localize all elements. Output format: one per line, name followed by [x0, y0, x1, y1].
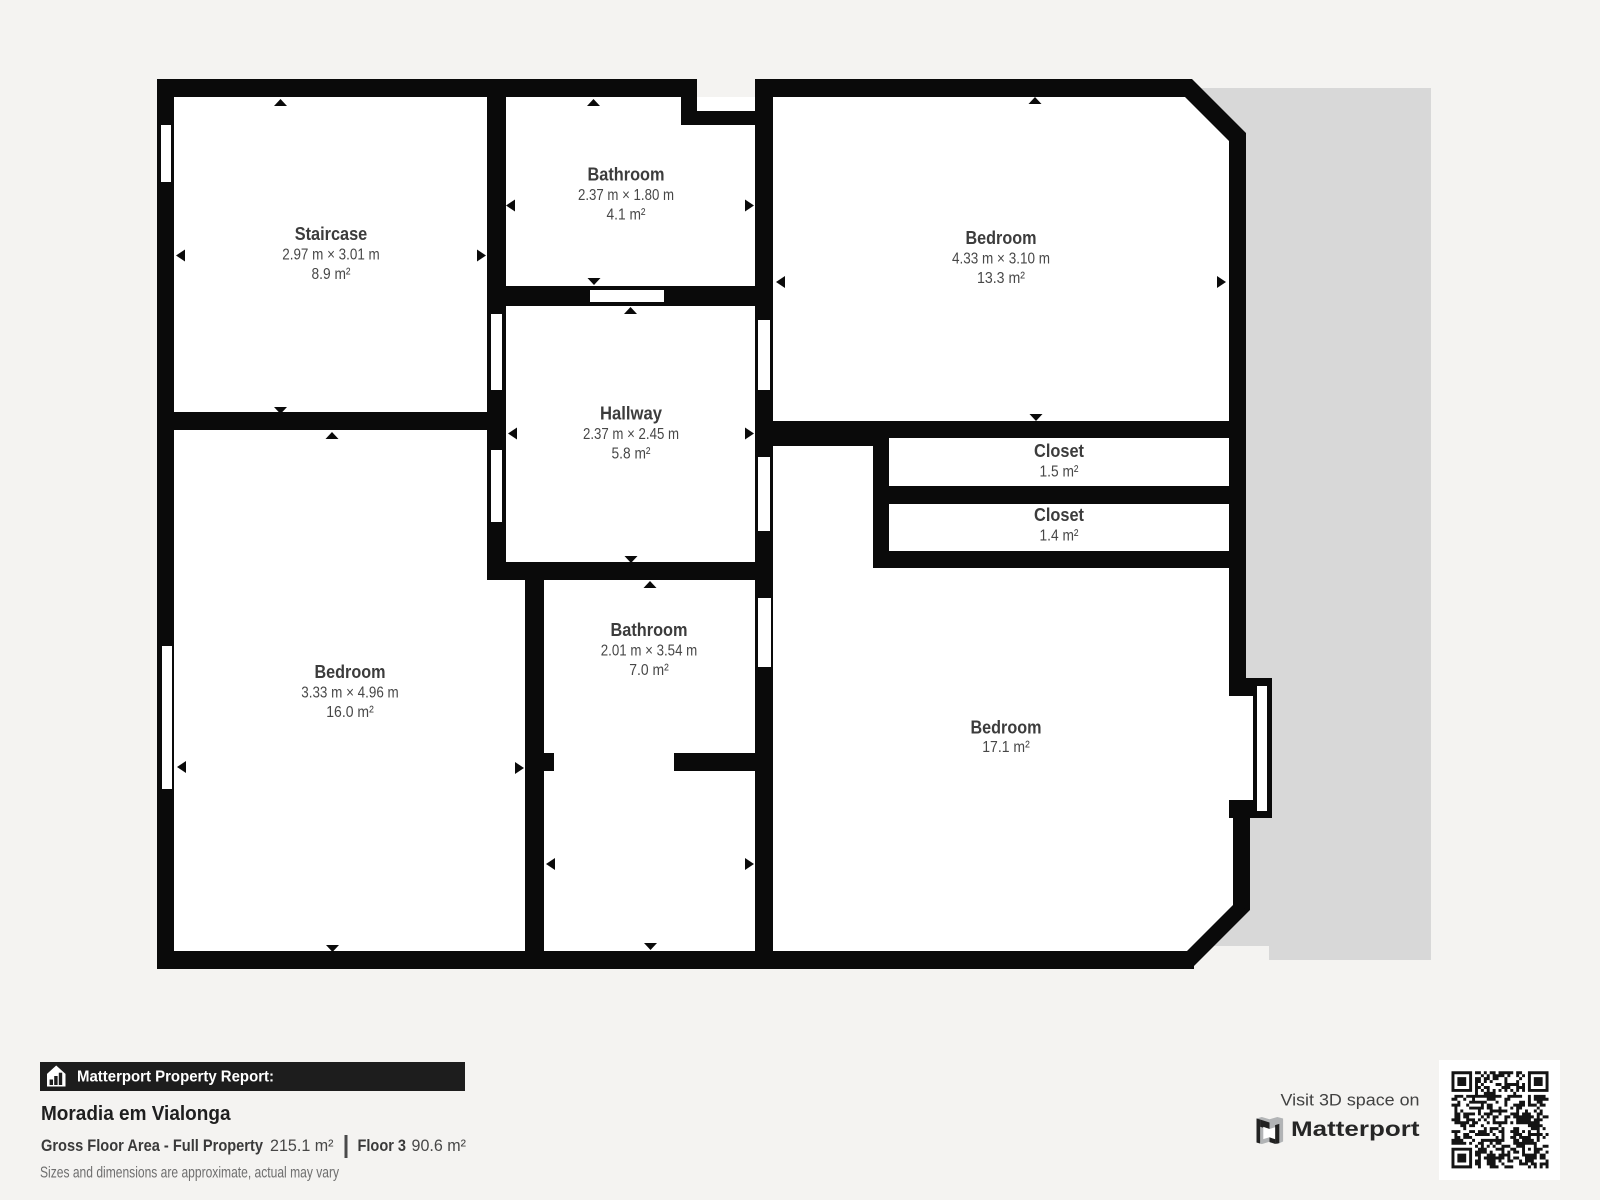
svg-text:Floor 3: Floor 3: [358, 1136, 407, 1155]
svg-text:Bathroom: Bathroom: [588, 165, 665, 185]
svg-text:2.97 m × 3.01 m: 2.97 m × 3.01 m: [282, 247, 380, 264]
svg-text:215.1 m²: 215.1 m²: [270, 1136, 334, 1155]
svg-text:Moradia em Vialonga: Moradia em Vialonga: [41, 1102, 231, 1125]
svg-text:2.37 m × 1.80 m: 2.37 m × 1.80 m: [578, 187, 674, 204]
svg-text:Hallway: Hallway: [600, 404, 662, 424]
svg-text:Bedroom: Bedroom: [971, 718, 1042, 738]
svg-text:2.01 m × 3.54 m: 2.01 m × 3.54 m: [601, 643, 698, 660]
svg-text:5.8 m²: 5.8 m²: [612, 446, 652, 463]
svg-text:13.3 m²: 13.3 m²: [977, 270, 1026, 287]
svg-text:2.37 m × 2.45 m: 2.37 m × 2.45 m: [583, 426, 679, 443]
svg-text:Bedroom: Bedroom: [966, 228, 1037, 248]
svg-text:17.1 m²: 17.1 m²: [982, 739, 1030, 756]
svg-text:Bathroom: Bathroom: [611, 620, 688, 640]
svg-text:Matterport: Matterport: [1291, 1117, 1420, 1141]
svg-text:4.33 m × 3.10 m: 4.33 m × 3.10 m: [952, 251, 1050, 268]
svg-text:16.0 m²: 16.0 m²: [326, 704, 374, 721]
svg-text:Gross Floor Area - Full Proper: Gross Floor Area - Full Property: [41, 1136, 263, 1155]
svg-text:3.33 m × 4.96 m: 3.33 m × 4.96 m: [301, 685, 399, 702]
svg-text:8.9 m²: 8.9 m²: [312, 266, 352, 283]
svg-text:Bedroom: Bedroom: [315, 662, 386, 682]
svg-text:Sizes and dimensions are appro: Sizes and dimensions are approximate, ac…: [40, 1165, 339, 1182]
svg-text:7.0 m²: 7.0 m²: [629, 662, 669, 679]
svg-text:1.5 m²: 1.5 m²: [1040, 464, 1080, 481]
svg-text:Closet: Closet: [1034, 441, 1084, 461]
svg-text:Closet: Closet: [1034, 505, 1084, 525]
svg-text:Visit 3D space on: Visit 3D space on: [1281, 1091, 1420, 1110]
svg-text:90.6 m²: 90.6 m²: [412, 1136, 467, 1155]
svg-text:1.4 m²: 1.4 m²: [1040, 528, 1080, 545]
svg-text:Staircase: Staircase: [295, 224, 368, 244]
svg-text:Matterport Property Report:: Matterport Property Report:: [77, 1068, 274, 1085]
svg-text:4.1 m²: 4.1 m²: [607, 207, 647, 224]
